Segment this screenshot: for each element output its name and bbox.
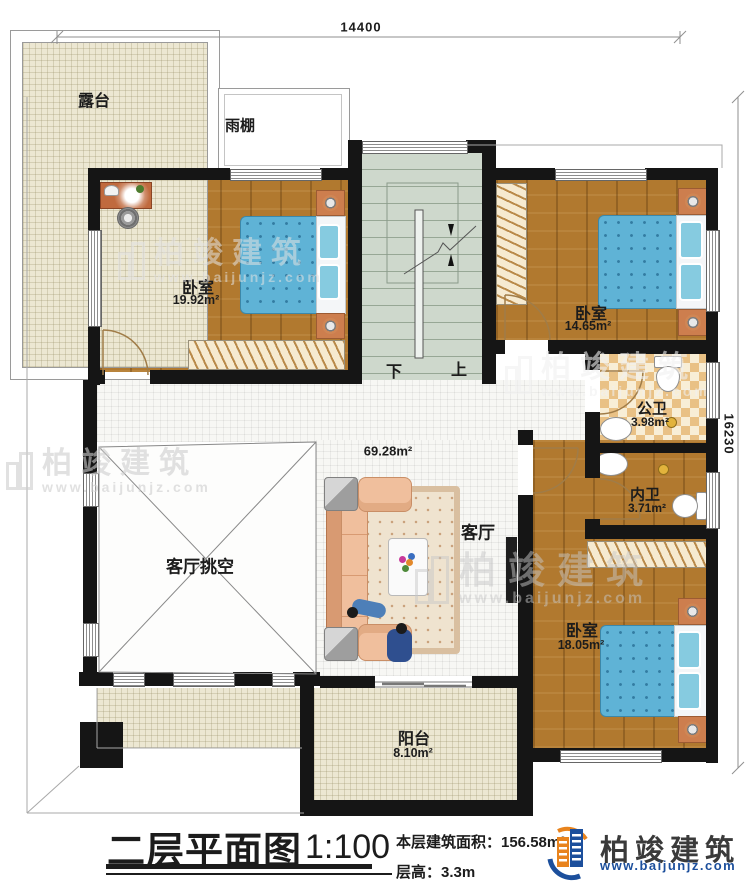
living-label: 客厅 xyxy=(461,519,495,544)
side-table xyxy=(324,477,358,511)
canopy-label: 雨棚 xyxy=(225,115,255,136)
bedroom2-pillow xyxy=(679,263,703,301)
toilet-icon xyxy=(672,494,698,518)
wall xyxy=(143,672,173,686)
wall xyxy=(585,340,600,370)
stairs-up-label: 上 xyxy=(451,356,467,380)
bedroom1-area-label: 19.92m² xyxy=(173,293,220,307)
plan-scale: 1:100 xyxy=(305,828,390,867)
wall xyxy=(88,168,230,180)
person-figure xyxy=(387,629,412,662)
ceiling-lamp-icon xyxy=(658,464,669,475)
brand-website: www.baijunjz.com xyxy=(600,858,736,873)
bedroom3-bed-blanket xyxy=(600,625,676,717)
living-area-label: 69.28m² xyxy=(364,444,412,459)
wall xyxy=(88,168,100,230)
bedroom1-nightstand xyxy=(316,313,345,339)
window xyxy=(706,362,720,419)
stairs-down-label: 下 xyxy=(386,358,402,382)
window-door-to-terrace xyxy=(88,230,102,327)
window xyxy=(706,472,720,529)
bedroom1-pillow xyxy=(318,264,340,300)
bedroom3-area-label: 18.05m² xyxy=(558,638,605,652)
bedroom3-wardrobe xyxy=(587,541,707,568)
title-underline-thin xyxy=(106,873,392,875)
walkway-strip-floor xyxy=(97,688,304,748)
bedroom2-nightstand xyxy=(678,188,708,215)
tv-icon xyxy=(506,537,517,603)
hall-floor xyxy=(97,380,585,442)
living-void-label: 客厅挑空 xyxy=(166,553,234,578)
bedroom2-nightstand xyxy=(678,309,708,336)
wall xyxy=(706,310,718,362)
armchair xyxy=(358,477,412,512)
bedroom2-area-label: 14.65m² xyxy=(565,319,612,333)
bedroom1-wardrobe xyxy=(188,340,345,370)
balcony-sliding-door xyxy=(375,682,472,687)
wall-pillar xyxy=(80,722,123,768)
wall xyxy=(600,443,706,453)
wall xyxy=(517,676,533,816)
wall xyxy=(585,525,718,539)
coffee-table xyxy=(388,538,428,596)
wall xyxy=(320,676,375,688)
wall xyxy=(79,672,105,686)
desk-chair xyxy=(117,207,139,229)
wall xyxy=(348,140,362,384)
window xyxy=(560,750,662,763)
wall xyxy=(304,800,530,816)
plant-icon xyxy=(136,185,144,193)
window xyxy=(272,673,295,687)
floor-height-text: 层高：3.3m xyxy=(396,861,475,882)
side-table xyxy=(324,627,358,661)
wall xyxy=(488,340,505,354)
floor-area-text: 本层建筑面积：156.58m² xyxy=(396,831,565,852)
bedroom3-pillow xyxy=(677,672,701,710)
brand-logo-icon xyxy=(544,823,594,881)
window xyxy=(83,623,99,657)
bedroom3-pillow xyxy=(677,631,701,669)
stairwell-floor xyxy=(362,152,482,384)
wall xyxy=(488,168,555,180)
bedroom2-wardrobe xyxy=(496,183,527,305)
wall xyxy=(585,412,600,478)
wall xyxy=(548,340,718,354)
public-bath-area-label: 3.98m² xyxy=(631,415,669,429)
bedroom3-nightstand xyxy=(678,598,707,625)
window xyxy=(83,473,99,507)
person-figure-head xyxy=(347,607,358,618)
bedroom2-pillow xyxy=(679,221,703,259)
flower-bouquet-icon xyxy=(399,556,406,563)
wall xyxy=(83,380,97,473)
floor-plan-canvas: 14400 16230 露台 雨棚 卧室 19.92m² 卧室 14.65m² … xyxy=(0,0,750,889)
bedroom1-nightstand xyxy=(316,190,345,216)
sink-icon xyxy=(600,417,632,441)
wall xyxy=(150,370,362,384)
dimension-top-label: 14400 xyxy=(340,20,381,35)
wall xyxy=(472,676,517,688)
desk-lamp-icon xyxy=(104,185,119,196)
balcony-area-label: 8.10m² xyxy=(393,746,433,760)
bedroom1-pillow xyxy=(318,224,340,260)
person-figure-head xyxy=(396,623,407,634)
wall xyxy=(706,168,718,230)
wall xyxy=(83,505,97,623)
wall xyxy=(518,430,533,445)
bedroom1-bed-blanket xyxy=(240,216,318,314)
dimension-right-label: 16230 xyxy=(722,413,737,454)
private-bath-area-label: 3.71m² xyxy=(628,501,666,515)
wall xyxy=(300,676,314,816)
window xyxy=(706,230,720,312)
bedroom2-bed-blanket xyxy=(598,215,678,309)
wall xyxy=(706,527,718,763)
window xyxy=(362,141,468,154)
window xyxy=(230,169,322,181)
wall xyxy=(466,140,496,153)
wall xyxy=(518,495,533,685)
wall xyxy=(233,672,272,686)
bedroom3-nightstand xyxy=(678,716,707,743)
window xyxy=(555,169,647,181)
window xyxy=(113,673,145,687)
window xyxy=(173,673,235,687)
watermark-building-icon xyxy=(6,452,36,490)
terrace-label: 露台 xyxy=(78,87,110,111)
wall xyxy=(706,417,718,472)
